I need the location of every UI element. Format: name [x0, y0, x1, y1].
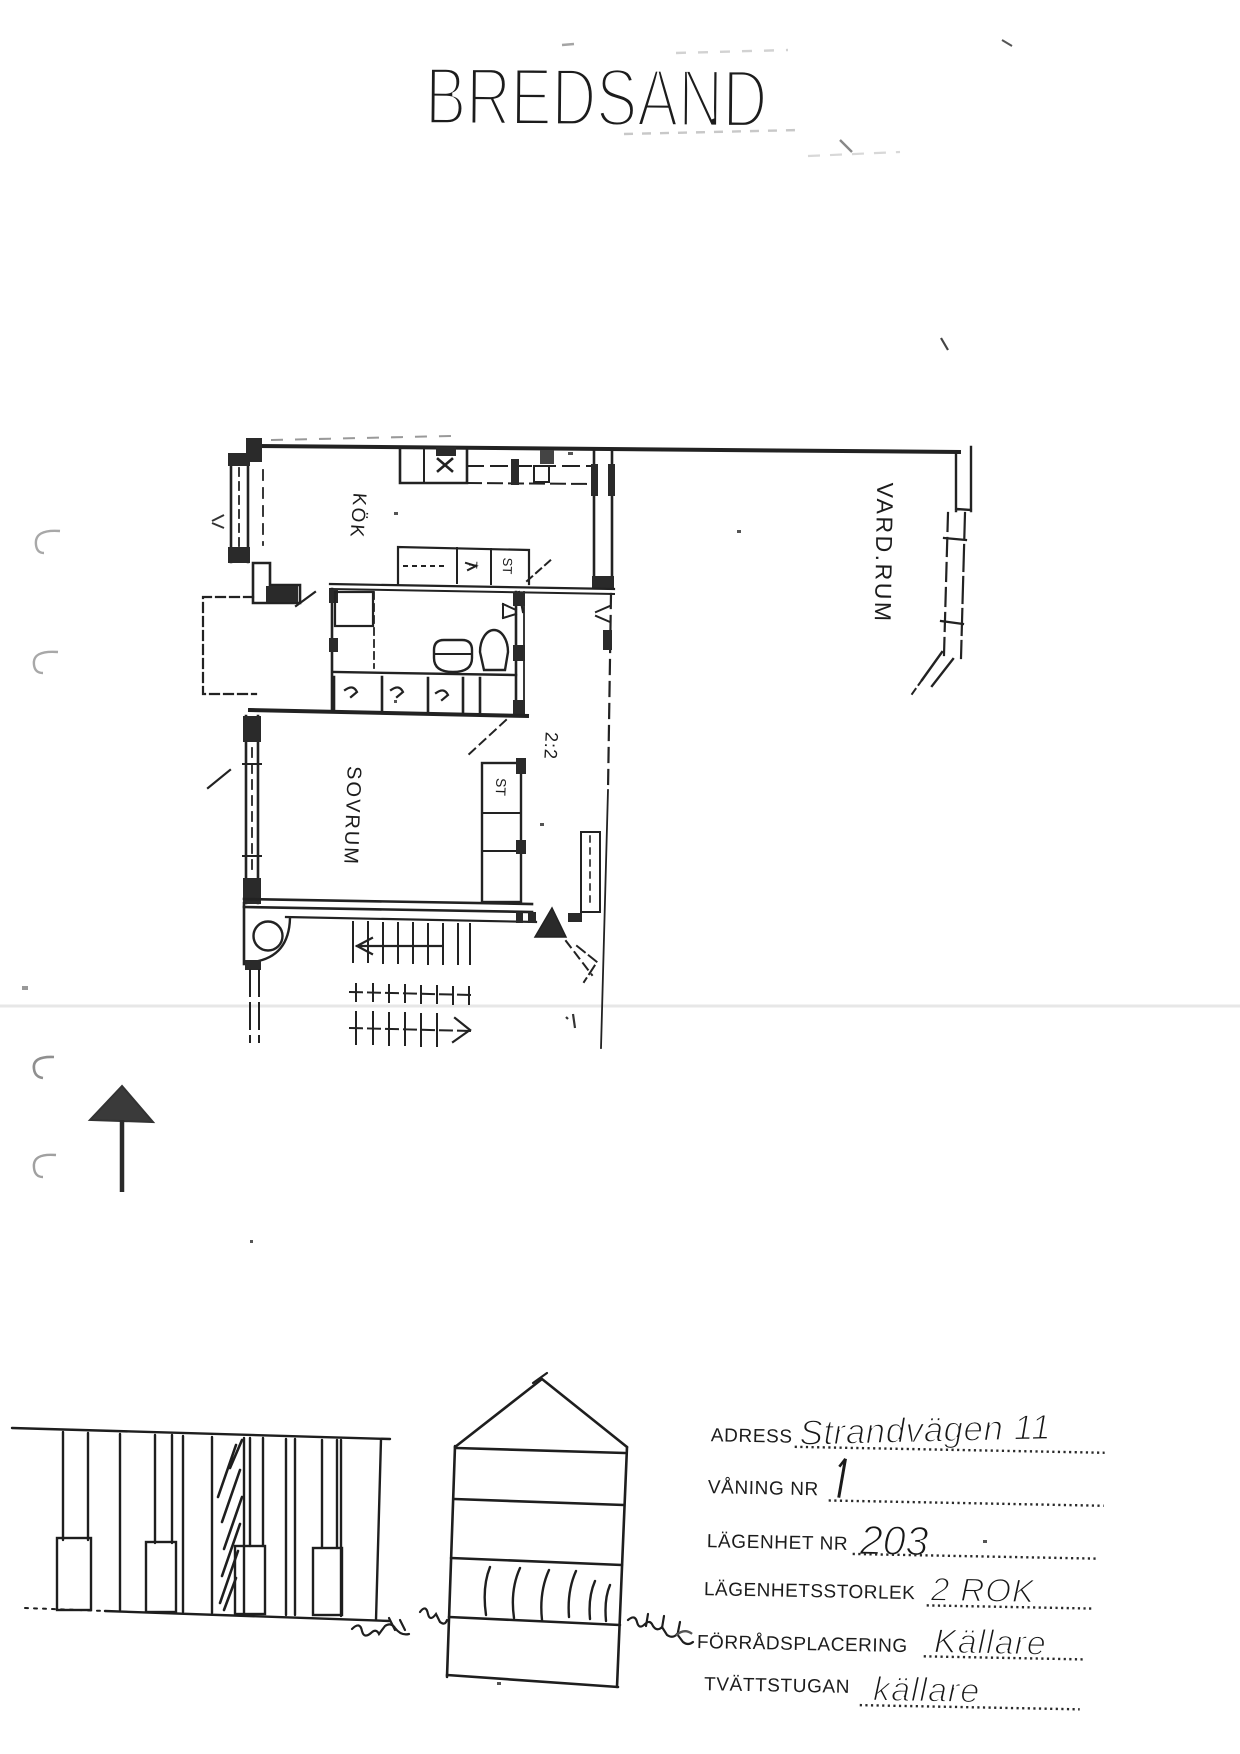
- svg-text:LÄGENHET NR: LÄGENHET NR: [707, 1531, 849, 1555]
- svg-text:källare: källare: [873, 1670, 981, 1710]
- svg-text:Strandvägen 11: Strandvägen 11: [799, 1408, 1051, 1453]
- svg-text:Källare: Källare: [934, 1623, 1048, 1663]
- svg-text:ST: ST: [500, 557, 516, 574]
- svg-text:ST: ST: [493, 778, 510, 797]
- svg-text:2:2: 2:2: [540, 731, 561, 760]
- svg-text:VARD.RUM: VARD.RUM: [870, 482, 898, 623]
- svg-text:ADRESS: ADRESS: [711, 1425, 793, 1448]
- svg-text:2 ROK: 2 ROK: [930, 1570, 1037, 1609]
- svg-text:KÖK: KÖK: [345, 492, 369, 539]
- svg-text:TVÄTTSTUGAN: TVÄTTSTUGAN: [704, 1674, 850, 1698]
- svg-text:SOVRUM: SOVRUM: [339, 766, 364, 867]
- svg-text:FÖRRÅDSPLACERING: FÖRRÅDSPLACERING: [697, 1631, 908, 1657]
- svg-text:VÅNING NR: VÅNING NR: [708, 1476, 819, 1500]
- svg-text:T: T: [466, 561, 480, 569]
- svg-text:LÄGENHETSSTORLEK: LÄGENHETSSTORLEK: [704, 1579, 916, 1604]
- svg-text:203: 203: [858, 1517, 928, 1564]
